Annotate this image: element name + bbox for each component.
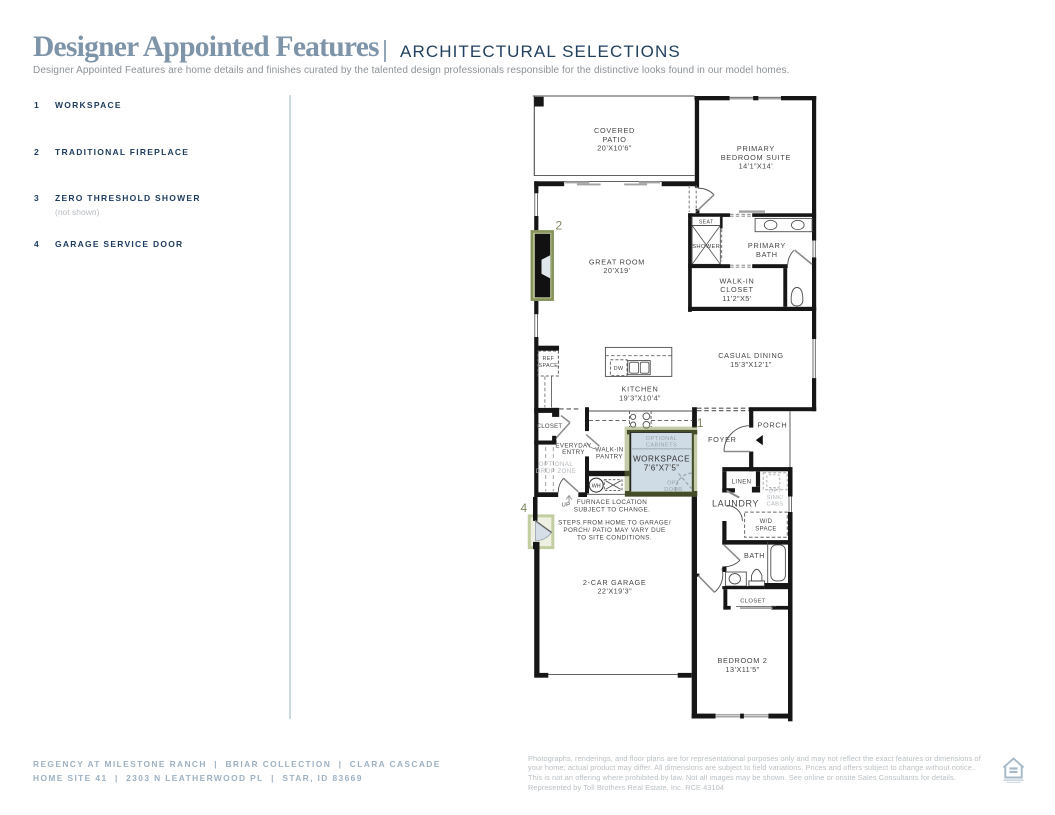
svg-text:19’3”X10’4”: 19’3”X10’4” [619,393,661,402]
svg-text:PRIMARY: PRIMARY [737,144,775,153]
svg-text:11’2”X5’: 11’2”X5’ [722,294,751,303]
svg-text:7’6”X7’5”: 7’6”X7’5” [644,464,679,473]
svg-text:1: 1 [697,416,704,430]
svg-text:CASUAL DINING: CASUAL DINING [718,351,784,360]
svg-text:STEPS FROM HOME TO GARAGE/: STEPS FROM HOME TO GARAGE/ [558,520,671,527]
svg-text:TO SITE CONDITIONS.: TO SITE CONDITIONS. [577,535,652,542]
svg-text:DOOR: DOOR [664,487,682,493]
svg-text:FURNACE LOCATION: FURNACE LOCATION [577,499,647,506]
svg-text:LINEN: LINEN [732,480,752,486]
svg-text:SHOWER: SHOWER [692,244,720,250]
svg-text:COVERED: COVERED [594,126,635,135]
svg-text:FOYER: FOYER [708,435,737,444]
svg-text:KITCHEN: KITCHEN [622,385,659,394]
svg-text:PORCH: PORCH [757,421,787,430]
svg-text:PANTRY: PANTRY [596,453,623,460]
svg-text:PRIMARY: PRIMARY [748,241,786,250]
svg-text:SPACE: SPACE [539,363,559,369]
svg-text:W/D: W/D [760,519,773,525]
svg-text:ENTRY: ENTRY [562,449,585,456]
svg-text:2-CAR GARAGE: 2-CAR GARAGE [583,578,647,587]
svg-text:SEAT: SEAT [699,219,714,225]
svg-text:BEDROOM 2: BEDROOM 2 [717,656,767,665]
svg-text:SUBJECT TO CHANGE.: SUBJECT TO CHANGE. [574,507,650,514]
svg-text:WORKSPACE: WORKSPACE [633,455,690,464]
svg-text:OPT: OPT [667,481,680,487]
svg-text:13’X11’5”: 13’X11’5” [726,665,760,674]
svg-text:CLOSET: CLOSET [537,424,563,430]
svg-text:CABINETS: CABINETS [646,442,677,448]
svg-text:WALK-IN: WALK-IN [719,277,754,286]
svg-text:20’X19’: 20’X19’ [603,266,630,275]
svg-text:15’3”X12’1”: 15’3”X12’1” [730,360,772,369]
svg-text:WH: WH [592,483,601,489]
svg-text:CABS: CABS [767,501,784,507]
svg-text:DW: DW [614,366,624,372]
svg-text:20’X10’6”: 20’X10’6” [597,143,632,152]
svg-text:GREAT ROOM: GREAT ROOM [589,258,645,267]
svg-text:REF: REF [542,356,554,362]
svg-text:22’X19’3”: 22’X19’3” [597,587,632,596]
svg-text:OPTIONAL: OPTIONAL [646,436,678,442]
svg-text:SPACE: SPACE [755,526,776,532]
svg-text:4: 4 [520,501,527,515]
svg-text:14’1”X14’: 14’1”X14’ [739,162,773,171]
svg-text:CLOSET: CLOSET [740,599,766,605]
svg-text:LAUNDRY: LAUNDRY [712,498,759,508]
svg-text:SINK/: SINK/ [767,495,784,501]
svg-text:UP: UP [562,503,571,509]
svg-text:BATH: BATH [744,551,765,560]
svg-text:OPT: OPT [769,489,782,495]
svg-text:DROP ZONE: DROP ZONE [536,468,576,475]
svg-text:PORCH/ PATIO MAY VARY DUE: PORCH/ PATIO MAY VARY DUE [563,527,665,534]
svg-text:OPTIONAL: OPTIONAL [539,461,574,468]
svg-text:2: 2 [555,219,562,233]
svg-text:BATH: BATH [756,250,778,259]
